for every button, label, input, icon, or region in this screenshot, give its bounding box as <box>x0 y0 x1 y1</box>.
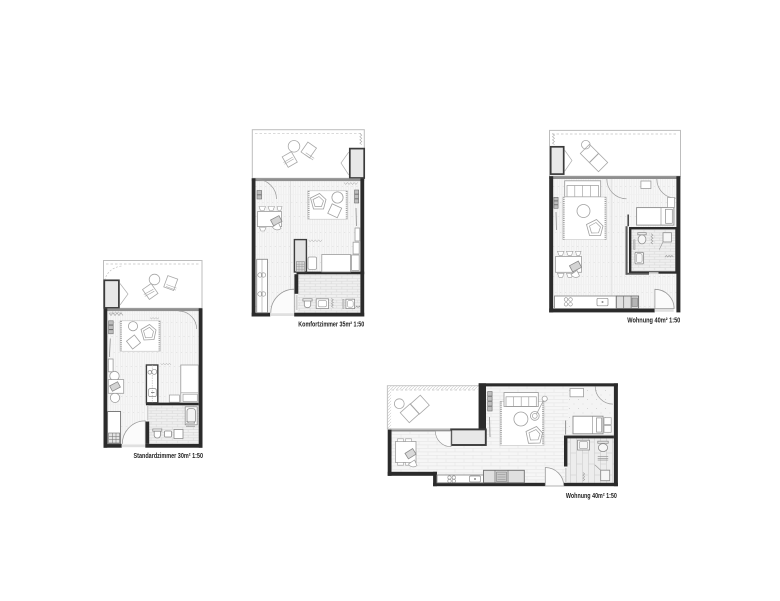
svg-text:Wohnung 40m² 1:50: Wohnung 40m² 1:50 <box>627 318 680 325</box>
svg-text:Wohnung 40m² 1:50: Wohnung 40m² 1:50 <box>566 493 617 500</box>
svg-text:Komfortzimmer 35m² 1:50: Komfortzimmer 35m² 1:50 <box>298 322 364 329</box>
svg-text:Standardzimmer 30m² 1:50: Standardzimmer 30m² 1:50 <box>134 453 204 460</box>
